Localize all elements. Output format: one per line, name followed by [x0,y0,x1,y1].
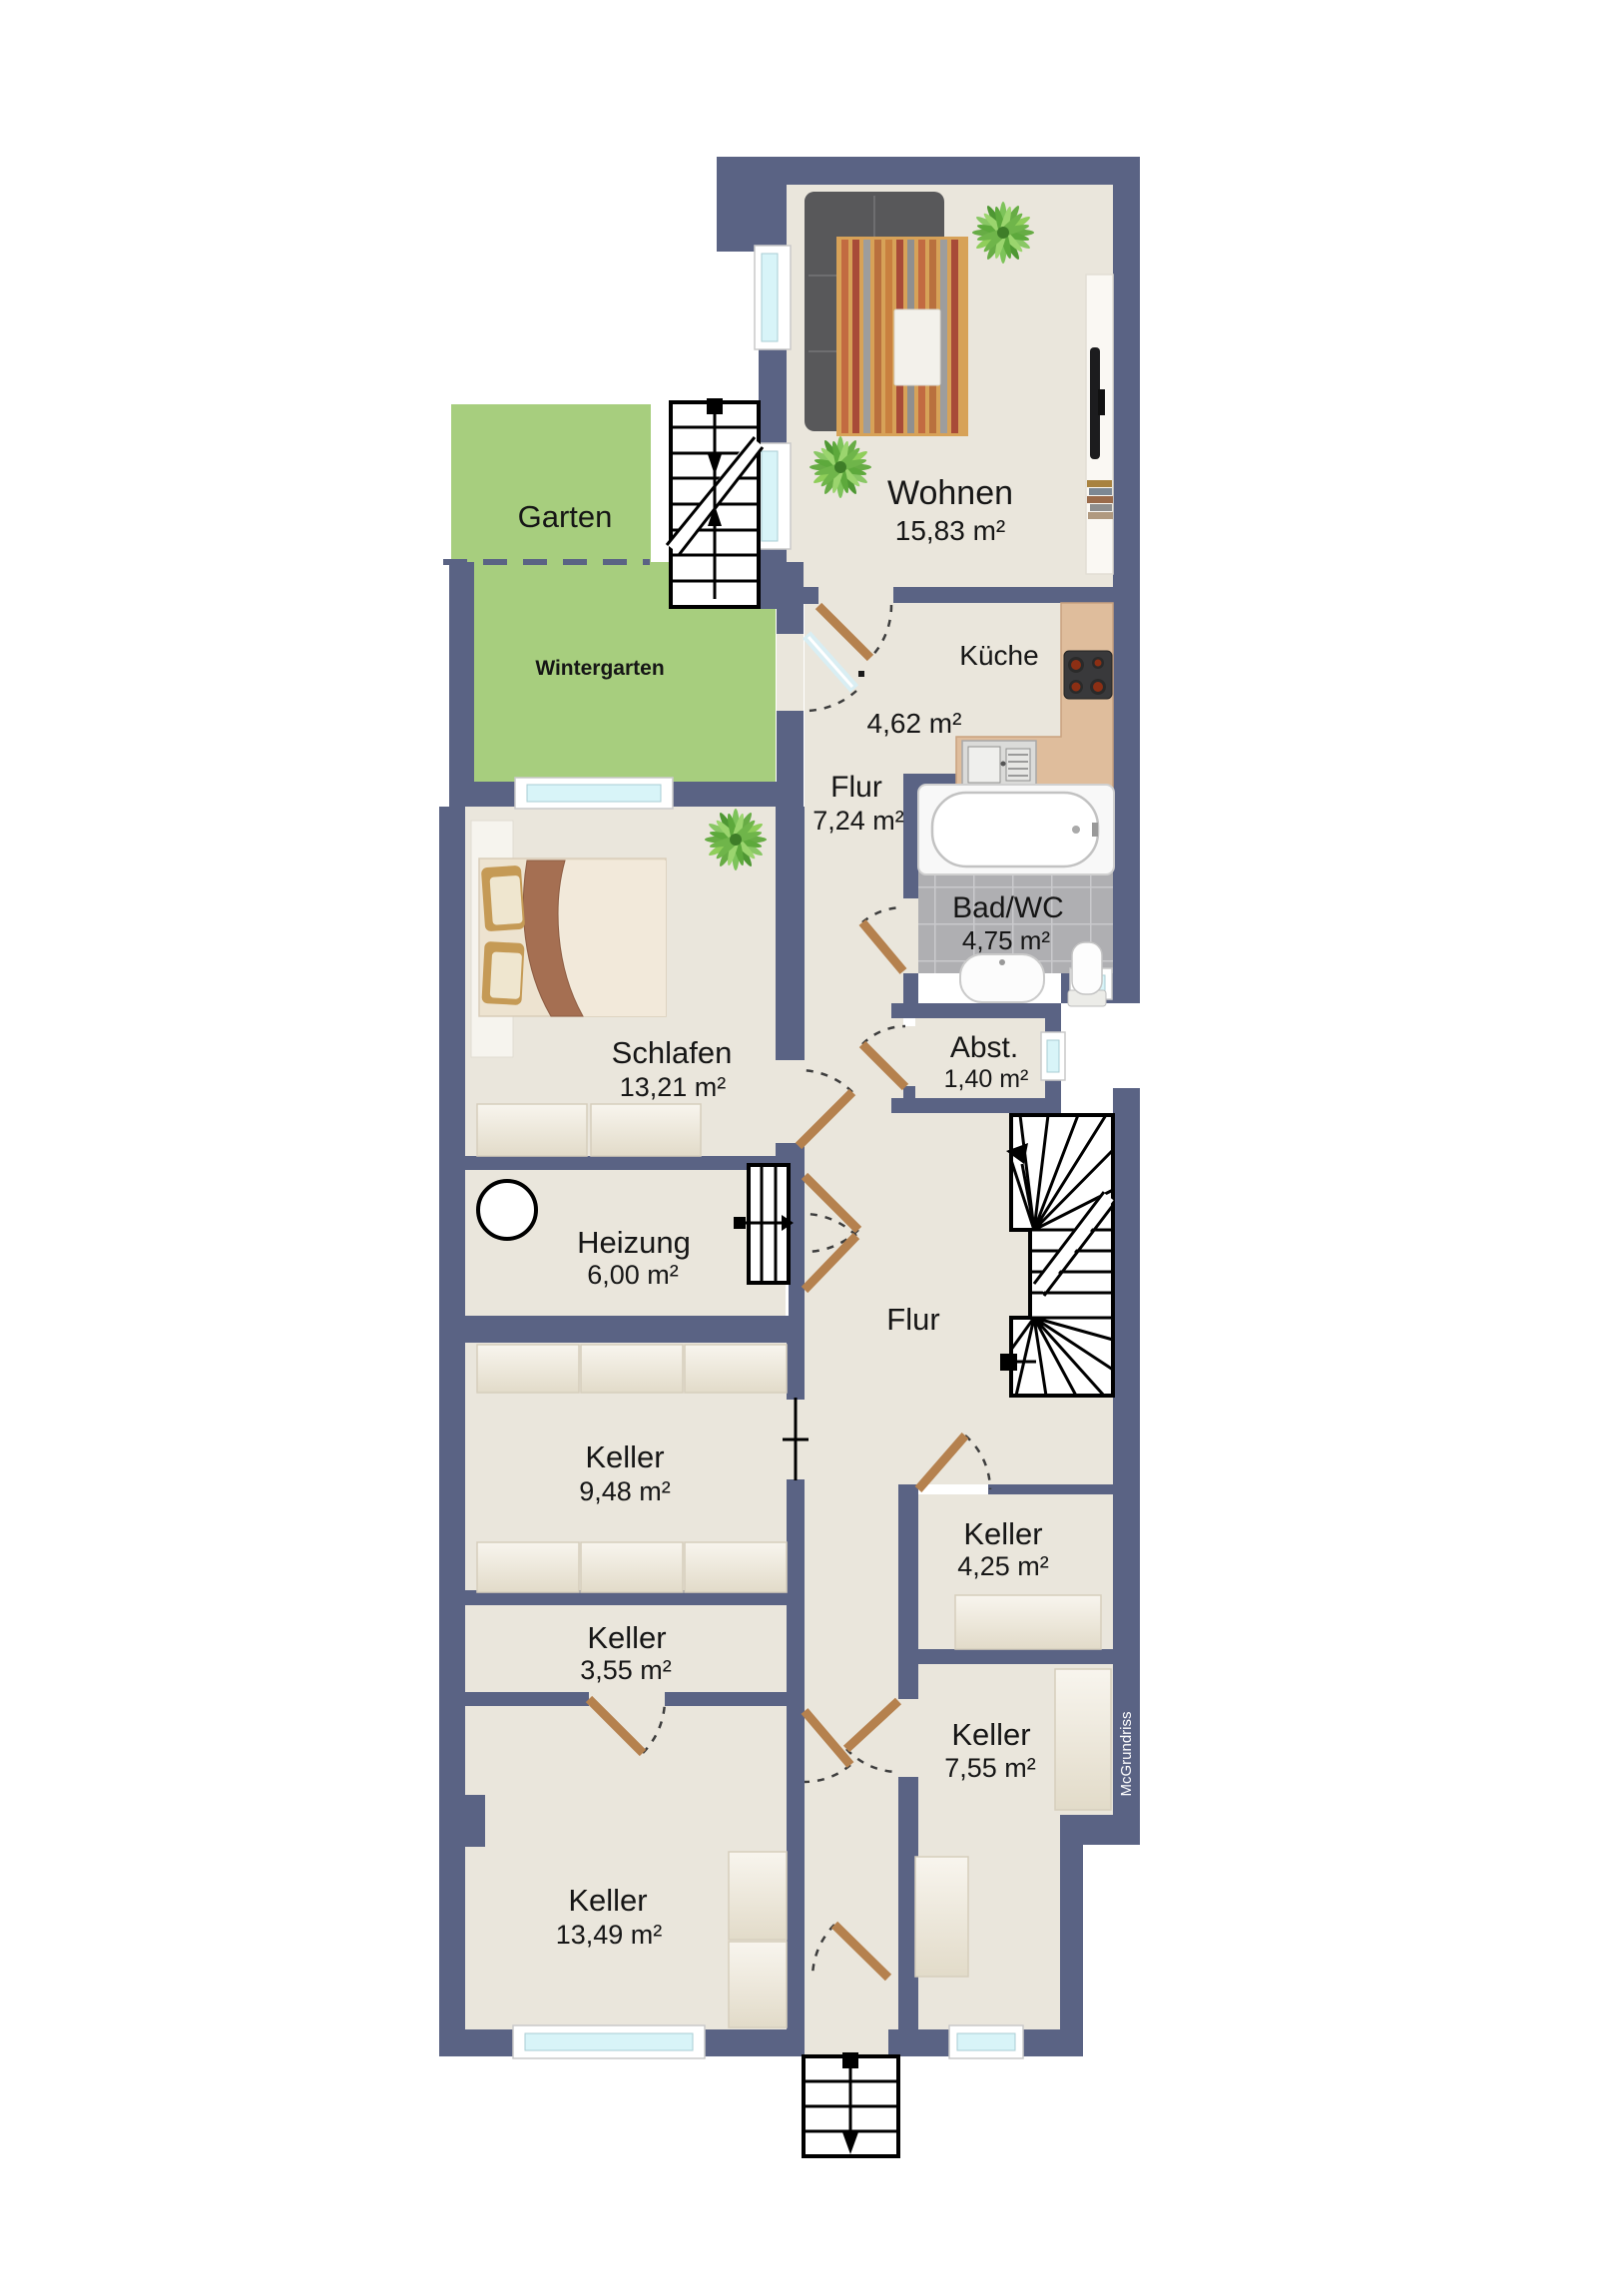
room-area-keller1349: 13,49 m² [556,1920,663,1950]
room-label-bad: Bad/WC [952,891,1064,924]
room-label-wohnen: Wohnen [887,474,1013,512]
keller425-box [955,1595,1101,1649]
room-label-keller755: Keller [951,1717,1030,1752]
watermark-text: McGrundriss [1118,1711,1135,1796]
room-label-keller1349: Keller [568,1883,647,1918]
garten-lawn [451,404,651,562]
outdoor-label-wintergarten: Wintergarten [535,657,664,680]
window [1041,1032,1065,1080]
gap-abst-door [903,1026,915,1088]
floor-flur-strip [805,774,903,1497]
room-label-flur: Flur [830,771,882,804]
window [515,778,673,809]
bathroom-sink [960,954,1044,1002]
room-area-keller948: 9,48 m² [579,1476,671,1506]
floorplan-svg: Wohnen 15,83 m² Küche 4,62 m² Flur 7,24 … [0,0,1623,2296]
room-area-keller355: 3,55 m² [580,1655,672,1685]
books [1087,480,1113,519]
room-label-flur-keller: Flur [886,1302,939,1337]
room-area-abstellraum: 1,40 m² [944,1065,1029,1093]
entrance-niche [1061,1003,1140,1088]
room-label-kueche: Küche [959,640,1038,671]
room-area-bad: 4,75 m² [962,925,1050,955]
room-label-keller355: Keller [587,1620,666,1655]
room-area-schlafen: 13,21 m² [620,1072,727,1102]
gap-keller-door [589,1692,665,1706]
room-label-heizung: Heizung [577,1225,691,1260]
room-label-keller425: Keller [963,1516,1042,1551]
keller1349-boxes [729,1852,787,2027]
outdoor-label-garten: Garten [518,499,613,534]
gap-wintergarten-door [777,634,804,711]
rug [836,237,968,436]
toilet [1068,942,1106,1006]
floorplan-page: Wohnen 15,83 m² Küche 4,62 m² Flur 7,24 … [0,0,1623,2296]
room-label-schlafen: Schlafen [612,1035,733,1070]
heating-tank [478,1181,536,1239]
room-label-keller948: Keller [585,1439,664,1474]
gap-schlafen-door [776,1060,805,1143]
floor-exit-threshold [805,2029,888,2056]
room-area-heizung: 6,00 m² [587,1260,679,1290]
coffee-table [894,309,940,385]
room-area-keller425: 4,25 m² [957,1551,1049,1581]
room-label-abstellraum: Abst. [950,1031,1018,1064]
exterior-stair-top [667,398,763,607]
room-area-kueche: 4,62 m² [867,708,962,739]
gap-corridor-door [898,1699,918,1777]
window [755,246,791,349]
room-area-flur: 7,24 m² [812,806,904,836]
room-area-wohnen: 15,83 m² [895,515,1006,546]
window [513,2025,705,2058]
room-area-keller755: 7,55 m² [944,1753,1036,1783]
window [949,2025,1023,2058]
stove [1064,651,1112,699]
bathtub [918,785,1114,874]
tv-sideboard [1086,275,1113,574]
exterior-stair-bottom [804,2052,898,2156]
kitchen-sink [962,741,1036,789]
gap-bad-door [903,898,918,973]
